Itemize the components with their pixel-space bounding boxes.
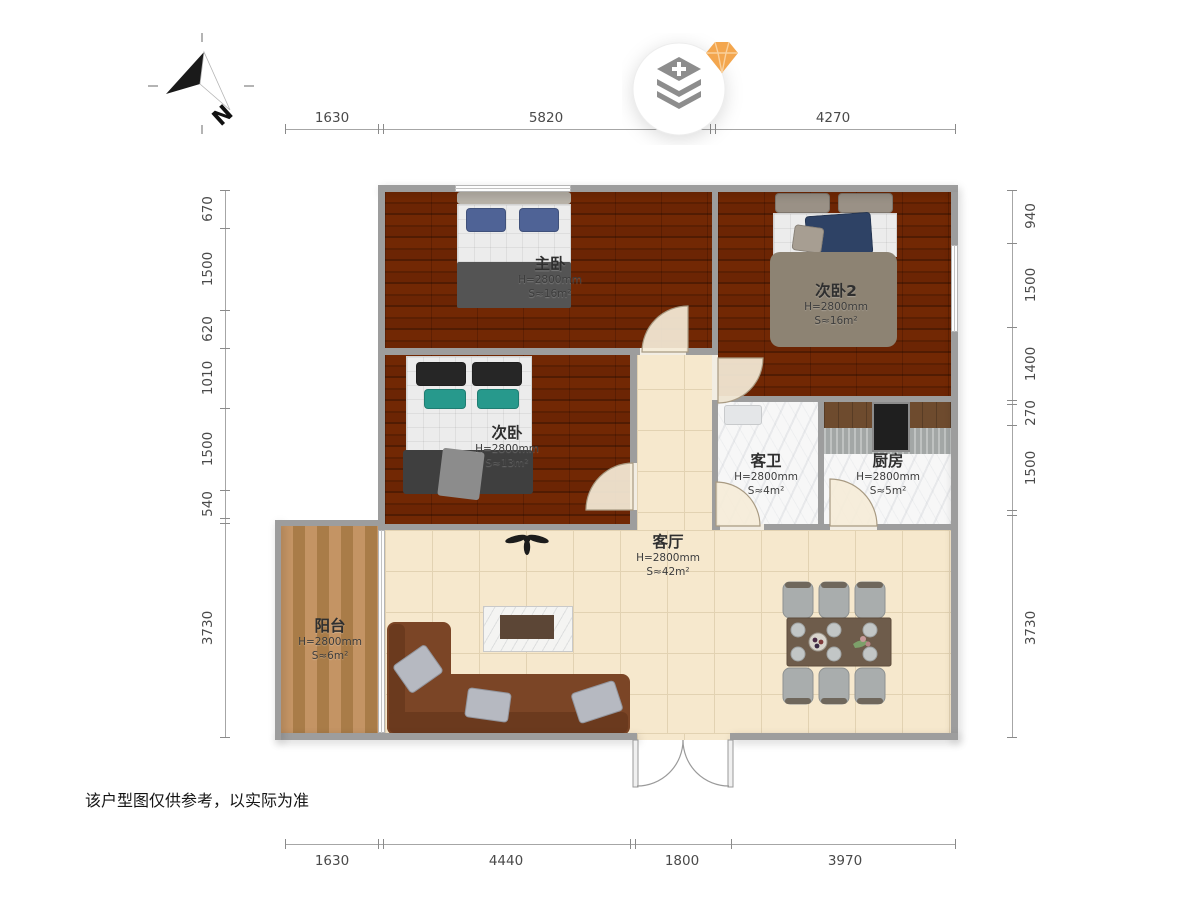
room-name: 次卧2 xyxy=(776,281,896,301)
bedroom2-window-line xyxy=(954,245,955,332)
wall xyxy=(718,396,951,402)
wall xyxy=(712,192,718,355)
entry-double-door xyxy=(633,740,733,787)
dim-bottom-2: 4440 xyxy=(474,853,538,869)
wall xyxy=(877,524,951,530)
room-height: H=2800mm xyxy=(608,552,728,566)
bedroom-pillow-black xyxy=(416,362,466,386)
dim-bottom-1: 1630 xyxy=(300,853,364,869)
compass-north-label: N xyxy=(208,101,238,132)
coffee-table-tray xyxy=(500,615,554,639)
bedroom2-pillow xyxy=(838,193,893,213)
room-label-bedroom2: 次卧2 H=2800mm S≈16m² xyxy=(776,281,896,328)
tick xyxy=(1007,510,1017,511)
door-threshold xyxy=(640,348,686,355)
tick xyxy=(1007,404,1017,405)
dim-line-top xyxy=(285,129,955,130)
dim-right-4: 270 xyxy=(1023,400,1039,426)
tick xyxy=(1007,400,1017,401)
tick xyxy=(1007,190,1017,191)
room-name: 客卫 xyxy=(716,451,816,471)
dim-left-6: 540 xyxy=(200,491,216,517)
master-bed-headboard xyxy=(457,192,571,204)
kitchen-stove xyxy=(872,402,910,452)
dim-right-5: 1500 xyxy=(1023,451,1039,485)
room-height: H=2800mm xyxy=(716,471,816,485)
room-area: S≈5m² xyxy=(838,485,938,499)
dim-bottom-4: 3970 xyxy=(813,853,877,869)
bedroom-pillow-black xyxy=(472,362,522,386)
tick xyxy=(220,190,230,191)
tick xyxy=(220,523,230,524)
room-label-bathroom: 客卫 H=2800mm S≈4m² xyxy=(716,451,816,498)
tick xyxy=(220,490,230,491)
tick xyxy=(955,839,956,849)
room-name: 主卧 xyxy=(485,254,615,274)
room-height: H=2800mm xyxy=(485,274,615,288)
balcony-door-line xyxy=(381,530,382,733)
compass-needle-light xyxy=(200,52,230,110)
room-area: S≈16m² xyxy=(485,288,615,302)
tick xyxy=(630,839,631,849)
disclaimer-text: 该户型图仅供参考，以实际为准 xyxy=(85,787,309,811)
door-threshold xyxy=(630,463,637,510)
tick xyxy=(383,124,384,134)
tick xyxy=(635,839,636,849)
balcony-wall xyxy=(275,520,385,526)
corridor-floor xyxy=(637,348,712,530)
tick xyxy=(1007,243,1017,244)
bedroom2-pillow xyxy=(775,193,830,213)
wall xyxy=(712,524,720,530)
dim-left-5: 1500 xyxy=(200,432,216,466)
room-height: H=2800mm xyxy=(838,471,938,485)
dim-left-4: 1010 xyxy=(200,361,216,395)
compass-needle-dark xyxy=(166,52,204,94)
dim-left-2: 1500 xyxy=(200,252,216,286)
tick xyxy=(220,518,230,519)
wall xyxy=(730,733,958,740)
tick xyxy=(383,839,384,849)
tick xyxy=(220,737,230,738)
tick xyxy=(285,124,286,134)
room-label-master: 主卧 H=2800mm S≈16m² xyxy=(485,254,615,301)
dim-line-left xyxy=(225,190,226,737)
wall xyxy=(378,192,385,530)
room-height: H=2800mm xyxy=(776,301,896,315)
bedroom-pillow-teal xyxy=(477,389,519,409)
room-label-living: 客厅 H=2800mm S≈42m² xyxy=(608,532,728,579)
dim-right-2: 1500 xyxy=(1023,268,1039,302)
master-bed-pillow xyxy=(519,208,559,232)
wall xyxy=(764,524,830,530)
tick xyxy=(1007,327,1017,328)
dim-top-3: 4270 xyxy=(801,110,865,126)
tick xyxy=(220,228,230,229)
wall xyxy=(275,733,637,740)
floorplan-canvas: 主卧 H=2800mm S≈16m² 次卧2 H=2800mm S≈16m² 次… xyxy=(0,0,1200,900)
tick xyxy=(955,124,956,134)
tick xyxy=(1007,515,1017,516)
room-name: 厨房 xyxy=(838,451,938,471)
door-threshold xyxy=(712,355,718,400)
room-area: S≈4m² xyxy=(716,485,816,499)
dim-right-6: 3730 xyxy=(1023,611,1039,645)
dim-left-7: 3730 xyxy=(200,611,216,645)
tick xyxy=(1007,425,1017,426)
room-name: 客厅 xyxy=(608,532,728,552)
compass-north-icon: N xyxy=(140,28,260,140)
dim-line-right xyxy=(1012,190,1013,737)
layers-add-icon xyxy=(622,33,752,145)
dim-left-1: 670 xyxy=(200,196,216,222)
tick xyxy=(220,348,230,349)
tick xyxy=(285,839,286,849)
tick xyxy=(1007,737,1017,738)
room-area: S≈16m² xyxy=(776,315,896,329)
door-threshold xyxy=(720,524,764,530)
room-label-kitchen: 厨房 H=2800mm S≈5m² xyxy=(838,451,938,498)
tick xyxy=(378,124,379,134)
tick xyxy=(220,310,230,311)
room-area: S≈6m² xyxy=(280,650,380,664)
sofa-pillow xyxy=(464,687,512,723)
room-height: H=2800mm xyxy=(447,443,567,457)
dim-bottom-3: 1800 xyxy=(650,853,714,869)
dim-left-3: 620 xyxy=(200,316,216,342)
dim-right-1: 940 xyxy=(1023,203,1039,229)
dim-top-2: 5820 xyxy=(514,110,578,126)
room-name: 阳台 xyxy=(280,616,380,636)
dim-top-1: 1630 xyxy=(300,110,364,126)
tick xyxy=(731,839,732,849)
door-threshold xyxy=(830,524,877,530)
room-height: H=2800mm xyxy=(280,636,380,650)
room-label-balcony: 阳台 H=2800mm S≈6m² xyxy=(280,616,380,663)
master-window-line xyxy=(455,188,571,189)
ceiling-fan-icon xyxy=(503,524,551,558)
room-label-bedroom: 次卧 H=2800mm S≈13m² xyxy=(447,423,567,470)
tick xyxy=(378,839,379,849)
bedroom-pillow-teal xyxy=(424,389,466,409)
room-area: S≈42m² xyxy=(608,566,728,580)
room-area: S≈13m² xyxy=(447,457,567,471)
bedroom2-cushion xyxy=(791,224,824,254)
wall xyxy=(378,348,640,355)
fruit-bowl xyxy=(809,633,827,651)
tick xyxy=(220,408,230,409)
dim-right-3: 1400 xyxy=(1023,347,1039,381)
entry-threshold xyxy=(637,733,730,740)
wall xyxy=(818,402,824,524)
bathroom-sink xyxy=(724,405,762,425)
dim-line-bottom xyxy=(285,844,955,845)
wall xyxy=(630,355,637,463)
room-name: 次卧 xyxy=(447,423,567,443)
master-bed-pillow xyxy=(466,208,506,232)
dining-set xyxy=(775,578,915,710)
